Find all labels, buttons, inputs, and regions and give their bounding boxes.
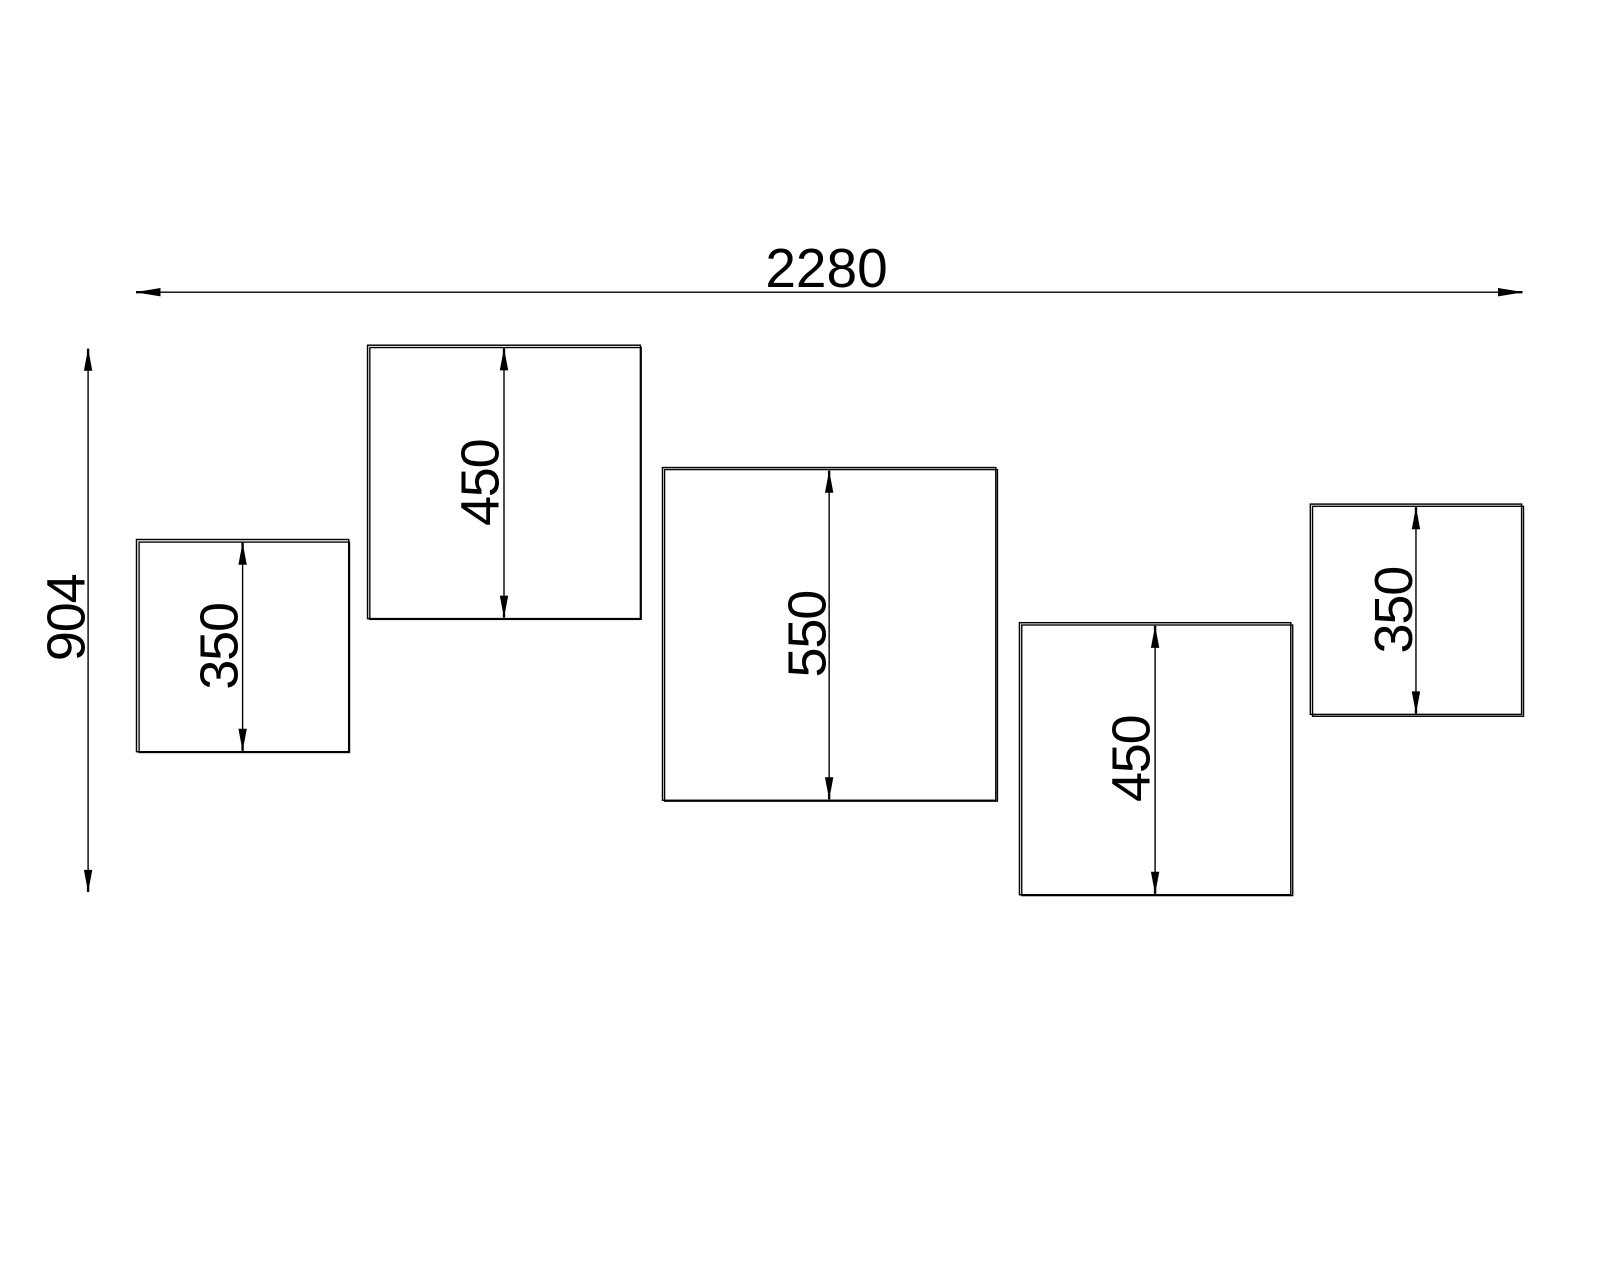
svg-text:450: 450 [451,440,511,527]
svg-text:550: 550 [777,591,837,678]
svg-text:350: 350 [190,603,250,690]
svg-text:450: 450 [1101,716,1161,803]
svg-text:904: 904 [36,574,96,661]
svg-text:350: 350 [1364,567,1424,654]
svg-text:2280: 2280 [765,237,887,299]
